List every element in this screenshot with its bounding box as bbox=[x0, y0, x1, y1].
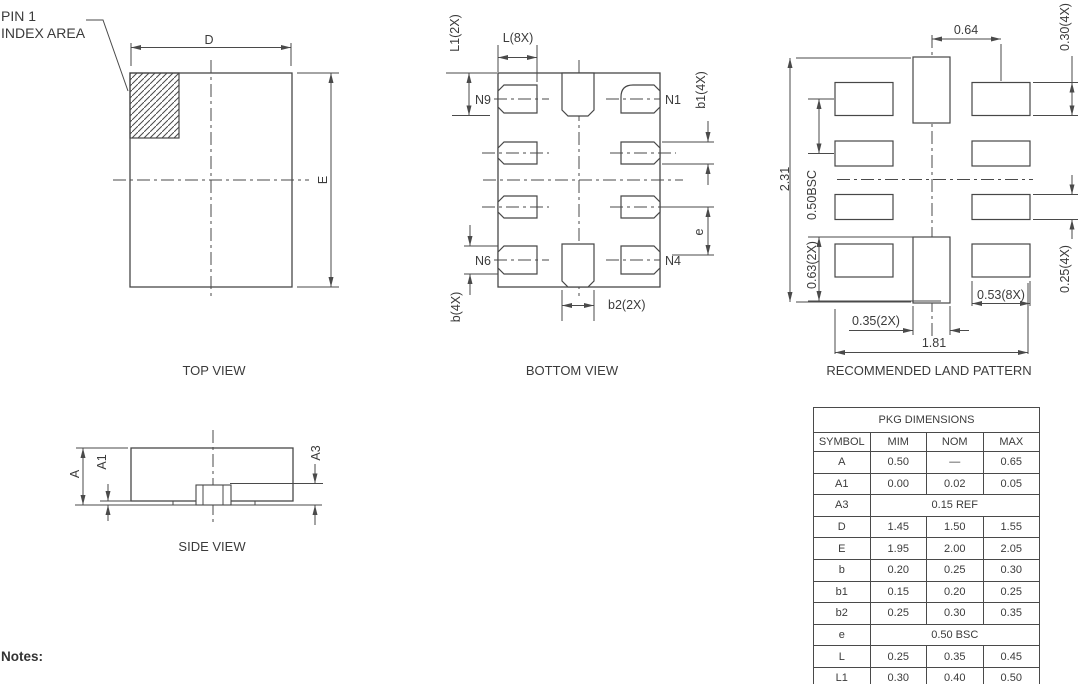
notes-block: Notes: 1. ALL DIMENSIONS ARE IN mm. ANGL… bbox=[1, 613, 481, 684]
cell-nom: 0.02 bbox=[927, 473, 984, 495]
pin-label-n1: N1 bbox=[665, 93, 681, 107]
side-view-leads bbox=[75, 485, 322, 505]
table-row: b1 0.15 0.20 0.25 bbox=[814, 581, 1040, 603]
pin1-label-line2: INDEX AREA bbox=[1, 25, 86, 41]
cell-max: 0.30 bbox=[983, 559, 1040, 581]
dim-b2 bbox=[562, 290, 594, 321]
dim-0.30-4x bbox=[1033, 56, 1078, 116]
side-view-caption: SIDE VIEW bbox=[178, 539, 246, 554]
dim-label-2.31: 2.31 bbox=[778, 167, 792, 191]
table-row: A3 0.15 REF bbox=[814, 495, 1040, 517]
dim-label-e: e bbox=[692, 228, 706, 235]
dim-e bbox=[662, 207, 714, 255]
cell-symbol: b1 bbox=[814, 581, 871, 603]
pin1-leader-line bbox=[86, 20, 128, 91]
cell-nom: 0.35 bbox=[927, 646, 984, 668]
dim-label-A3: A3 bbox=[309, 445, 323, 460]
dim-label-L1: L1(2X) bbox=[448, 14, 462, 52]
dim-label-L: L(8X) bbox=[503, 31, 534, 45]
cell-symbol: L bbox=[814, 646, 871, 668]
dim-label-0.64: 0.64 bbox=[954, 23, 978, 37]
dim-label-0.25-4x: 0.25(4X) bbox=[1058, 245, 1072, 293]
pin1-index-area-hatch bbox=[130, 73, 179, 138]
cell-max: 0.25 bbox=[983, 581, 1040, 603]
table-header-row: SYMBOL MIM NOM MAX bbox=[814, 433, 1040, 452]
dim-0.25-4x bbox=[1033, 175, 1078, 239]
table-row: A1 0.00 0.02 0.05 bbox=[814, 473, 1040, 495]
dim-label-0.50bsc: 0.50BSC bbox=[805, 170, 819, 220]
header-symbol: SYMBOL bbox=[814, 433, 871, 452]
top-view: PIN 1 INDEX AREA D E TOP VIEW bbox=[1, 8, 339, 378]
table-title-row: PKG DIMENSIONS bbox=[814, 408, 1040, 433]
dim-label-D: D bbox=[204, 33, 213, 47]
dim-label-0.63-2x: 0.63(2X) bbox=[805, 241, 819, 289]
side-view: A A1 A3 SIDE VIEW bbox=[68, 430, 323, 554]
dim-label-A: A bbox=[68, 469, 82, 478]
cell-symbol: L1 bbox=[814, 667, 871, 684]
cell-nom: 0.25 bbox=[927, 559, 984, 581]
cell-max: 0.35 bbox=[983, 603, 1040, 625]
cell-min: 1.95 bbox=[870, 538, 927, 560]
dim-label-0.35-2x: 0.35(2X) bbox=[852, 314, 900, 328]
dim-label-1.81: 1.81 bbox=[922, 336, 946, 350]
top-view-caption: TOP VIEW bbox=[182, 363, 246, 378]
header-nom: NOM bbox=[927, 433, 984, 452]
cell-symbol: A bbox=[814, 452, 871, 474]
table-row: E 1.95 2.00 2.05 bbox=[814, 538, 1040, 560]
dim-label-b: b(4X) bbox=[449, 292, 463, 323]
dim-label-E: E bbox=[316, 176, 330, 184]
pin1-label-line1: PIN 1 bbox=[1, 8, 36, 24]
table-row: A 0.50 — 0.65 bbox=[814, 452, 1040, 474]
header-min: MIM bbox=[870, 433, 927, 452]
land-pattern: 0.64 0.30(4X) 2.31 0.50BSC 0.63(2X) 0.25… bbox=[778, 3, 1078, 378]
cell-nom: — bbox=[927, 452, 984, 474]
dim-label-0.30-4x: 0.30(4X) bbox=[1058, 3, 1072, 51]
dim-label-b1: b1(4X) bbox=[694, 71, 708, 109]
cell-span: 0.50 BSC bbox=[870, 624, 1040, 646]
cell-min: 0.15 bbox=[870, 581, 927, 603]
cell-min: 0.50 bbox=[870, 452, 927, 474]
cell-min: 1.45 bbox=[870, 516, 927, 538]
cell-max: 2.05 bbox=[983, 538, 1040, 560]
cell-max: 1.55 bbox=[983, 516, 1040, 538]
cell-min: 0.25 bbox=[870, 646, 927, 668]
cell-min: 0.00 bbox=[870, 473, 927, 495]
header-max: MAX bbox=[983, 433, 1040, 452]
cell-min: 0.30 bbox=[870, 667, 927, 684]
cell-nom: 2.00 bbox=[927, 538, 984, 560]
table-row: b 0.20 0.25 0.30 bbox=[814, 559, 1040, 581]
pin-label-n4: N4 bbox=[665, 254, 681, 268]
table-row: D 1.45 1.50 1.55 bbox=[814, 516, 1040, 538]
datasheet-package-drawing-page: PIN 1 INDEX AREA D E TOP VIEW bbox=[0, 0, 1080, 684]
cell-nom: 0.30 bbox=[927, 603, 984, 625]
table-row: L1 0.30 0.40 0.50 bbox=[814, 667, 1040, 684]
cell-min: 0.25 bbox=[870, 603, 927, 625]
pin-label-n9: N9 bbox=[475, 93, 491, 107]
table-row: e 0.50 BSC bbox=[814, 624, 1040, 646]
cell-span: 0.15 REF bbox=[870, 495, 1040, 517]
cell-symbol: b bbox=[814, 559, 871, 581]
dim-L bbox=[498, 45, 537, 82]
dim-0.50bsc bbox=[808, 99, 834, 154]
cell-nom: 1.50 bbox=[927, 516, 984, 538]
cell-symbol: e bbox=[814, 624, 871, 646]
table-row: L 0.25 0.35 0.45 bbox=[814, 646, 1040, 668]
dim-A3 bbox=[230, 464, 323, 525]
pin-label-n6: N6 bbox=[475, 254, 491, 268]
notes-heading: Notes: bbox=[1, 648, 481, 666]
table-row: b2 0.25 0.30 0.35 bbox=[814, 603, 1040, 625]
cell-nom: 0.40 bbox=[927, 667, 984, 684]
bottom-view: L1(2X) L(8X) N9 N1 N6 N4 b1(4X) e b(4X) … bbox=[446, 14, 714, 378]
land-pattern-caption: RECOMMENDED LAND PATTERN bbox=[826, 363, 1031, 378]
pkg-dimensions-table: PKG DIMENSIONS SYMBOL MIM NOM MAX A 0.50… bbox=[813, 407, 1040, 684]
pad-center-top bbox=[562, 73, 594, 116]
cell-symbol: E bbox=[814, 538, 871, 560]
cell-min: 0.20 bbox=[870, 559, 927, 581]
cell-max: 0.45 bbox=[983, 646, 1040, 668]
cell-nom: 0.20 bbox=[927, 581, 984, 603]
dim-label-A1: A1 bbox=[95, 454, 109, 469]
bottom-view-caption: BOTTOM VIEW bbox=[526, 363, 619, 378]
table-title: PKG DIMENSIONS bbox=[814, 408, 1040, 433]
side-view-lead-stub bbox=[196, 485, 231, 505]
cell-symbol: D bbox=[814, 516, 871, 538]
pad-center-bottom bbox=[562, 244, 594, 287]
cell-symbol: A1 bbox=[814, 473, 871, 495]
cell-max: 0.05 bbox=[983, 473, 1040, 495]
cell-max: 0.50 bbox=[983, 667, 1040, 684]
dim-label-0.53-8x: 0.53(8X) bbox=[977, 288, 1025, 302]
cell-symbol: b2 bbox=[814, 603, 871, 625]
cell-max: 0.65 bbox=[983, 452, 1040, 474]
cell-symbol: A3 bbox=[814, 495, 871, 517]
dim-label-b2: b2(2X) bbox=[608, 298, 646, 312]
